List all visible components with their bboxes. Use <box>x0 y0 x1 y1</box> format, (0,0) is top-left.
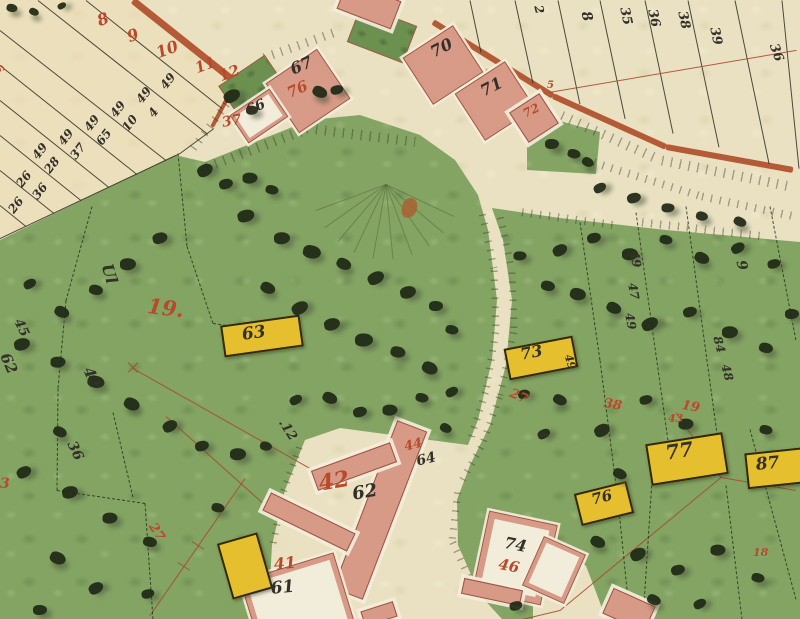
black-ink-number: 2 <box>532 4 546 15</box>
map-line <box>782 0 800 168</box>
tree-symbol <box>662 203 675 212</box>
black-ink-number: 36 <box>767 42 785 63</box>
road-hachure <box>699 192 793 220</box>
map-line <box>558 0 581 104</box>
black-ink-number: 36 <box>645 8 661 28</box>
tree-symbol <box>592 181 608 195</box>
road-hachure <box>659 155 789 191</box>
red-survey-line <box>549 50 796 93</box>
tree-symbol <box>732 215 748 229</box>
map-line <box>515 0 534 83</box>
map-line <box>735 0 770 163</box>
map-canvas[interactable]: 8910111237626283765104494949494949263683… <box>0 0 800 619</box>
building-bottom-edge-centre <box>360 601 397 619</box>
black-ink-number: 8 <box>578 10 594 23</box>
black-ink-number: 39 <box>707 26 723 46</box>
black-ink-number: 35 <box>617 6 633 26</box>
map-line <box>645 0 674 133</box>
red-ink-number: 5 <box>547 81 554 91</box>
road-hachure <box>591 158 701 200</box>
tree-symbol <box>626 192 642 205</box>
map-line <box>688 0 720 147</box>
map-line <box>470 0 482 52</box>
black-ink-number: 38 <box>675 10 691 30</box>
yellow-marker-87 <box>744 447 800 489</box>
tree-symbol <box>695 210 709 221</box>
road-border-line <box>665 144 793 173</box>
map-line <box>600 0 626 118</box>
road-hachure <box>260 26 341 62</box>
